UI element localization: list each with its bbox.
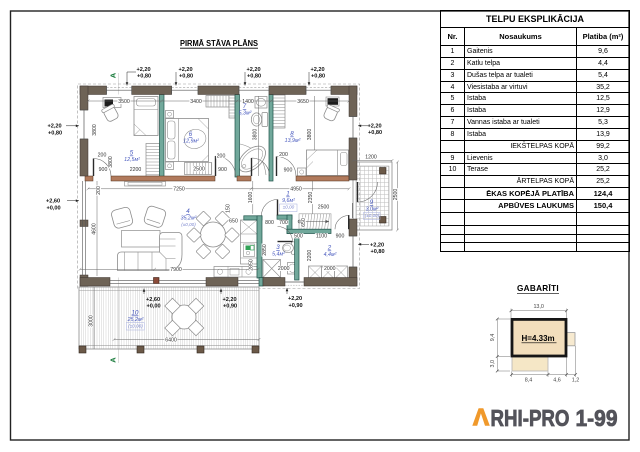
svg-text:1: 1 <box>286 191 289 198</box>
svg-text:4600: 4600 <box>92 223 98 235</box>
svg-text:7250: 7250 <box>173 187 185 193</box>
svg-text:2200: 2200 <box>130 167 142 173</box>
svg-text:2: 2 <box>327 245 332 252</box>
svg-text:RHI-PRO: RHI-PRO <box>491 405 570 431</box>
svg-text:+0,00: +0,00 <box>147 304 161 310</box>
svg-text:3500: 3500 <box>118 99 130 105</box>
svg-text:+0,80: +0,80 <box>371 249 385 255</box>
svg-text:2850: 2850 <box>248 259 254 271</box>
svg-text:1100: 1100 <box>316 233 327 239</box>
svg-text:+0,80: +0,80 <box>311 74 325 80</box>
svg-text:3800: 3800 <box>253 129 259 141</box>
svg-text:35,2м²: 35,2м² <box>181 216 197 222</box>
svg-text:+0,90: +0,90 <box>289 303 303 309</box>
svg-text:900: 900 <box>99 167 108 173</box>
svg-text:8: 8 <box>290 131 294 138</box>
svg-text:13,0: 13,0 <box>533 304 544 310</box>
svg-text:12,9м²: 12,9м² <box>183 139 199 145</box>
svg-text:+2,20: +2,20 <box>370 242 384 248</box>
svg-text:2500: 2500 <box>318 204 330 210</box>
svg-text:6: 6 <box>189 131 193 138</box>
svg-text:±0,00: ±0,00 <box>283 205 295 210</box>
svg-text:+0,80: +0,80 <box>368 130 382 136</box>
svg-text:3800: 3800 <box>108 156 114 168</box>
svg-text:4: 4 <box>186 208 190 215</box>
svg-text:1600: 1600 <box>248 192 254 204</box>
svg-text:(±0,00): (±0,00) <box>365 213 380 218</box>
svg-text:3,0м²: 3,0м² <box>366 207 379 213</box>
svg-text:700: 700 <box>279 220 288 226</box>
svg-text:1-99: 1-99 <box>576 405 618 431</box>
svg-text:2000: 2000 <box>278 266 290 272</box>
svg-text:+2,20: +2,20 <box>48 124 62 130</box>
svg-text:900: 900 <box>284 168 293 174</box>
svg-text:12,5м²: 12,5м² <box>124 157 140 163</box>
svg-text:+2,20: +2,20 <box>247 67 261 73</box>
svg-text:200: 200 <box>96 186 102 195</box>
svg-text:+2,20: +2,20 <box>288 296 302 302</box>
svg-text:1200: 1200 <box>365 154 377 160</box>
svg-text:+0,00: +0,00 <box>47 205 61 211</box>
svg-text:7: 7 <box>243 103 247 110</box>
svg-text:+0,80: +0,80 <box>179 74 193 80</box>
svg-text:650: 650 <box>301 218 307 227</box>
svg-text:7900: 7900 <box>170 267 182 273</box>
svg-text:+2,20: +2,20 <box>223 297 237 303</box>
svg-text:H=4.33m: H=4.33m <box>522 334 555 343</box>
svg-text:+2,20: +2,20 <box>311 67 325 73</box>
svg-text:9,6м²: 9,6м² <box>282 198 295 204</box>
svg-text:GABARĪTI: GABARĪTI <box>517 283 559 293</box>
svg-text:3400: 3400 <box>190 99 202 105</box>
svg-text:+2,20: +2,20 <box>179 67 193 73</box>
svg-text:3000: 3000 <box>89 315 95 327</box>
svg-text:+0,80: +0,80 <box>137 74 151 80</box>
svg-text:3: 3 <box>276 244 280 251</box>
svg-text:+0,80: +0,80 <box>48 130 62 136</box>
svg-text:(±0,00): (±0,00) <box>128 324 143 329</box>
svg-text:9,4: 9,4 <box>490 334 496 342</box>
svg-text:(±0,00): (±0,00) <box>181 222 196 227</box>
svg-text:+2,60: +2,60 <box>146 297 160 303</box>
svg-text:3,0: 3,0 <box>490 360 496 368</box>
svg-text:900: 900 <box>218 167 227 173</box>
svg-text:150: 150 <box>226 204 232 213</box>
svg-text:PIRMĀ STĀVA PLĀNS: PIRMĀ STĀVA PLĀNS <box>180 38 258 48</box>
svg-text:2200: 2200 <box>307 250 313 262</box>
svg-text:3800: 3800 <box>92 124 98 136</box>
svg-text:+0,80: +0,80 <box>247 74 261 80</box>
svg-text:25,2м²: 25,2м² <box>127 317 144 323</box>
svg-text:2850: 2850 <box>262 244 268 256</box>
svg-text:13,9м²: 13,9м² <box>285 138 301 144</box>
svg-text:3800: 3800 <box>307 129 313 141</box>
svg-text:800: 800 <box>265 220 274 226</box>
svg-text:8,4: 8,4 <box>525 378 533 384</box>
svg-text:5,4м²: 5,4м² <box>272 252 285 258</box>
svg-text:1,2: 1,2 <box>572 378 580 384</box>
svg-text:500: 500 <box>294 233 303 239</box>
svg-text:3650: 3650 <box>297 99 309 105</box>
svg-text:200: 200 <box>217 154 226 160</box>
svg-text:9: 9 <box>370 199 374 206</box>
svg-text:2500: 2500 <box>193 166 205 172</box>
svg-text:2000: 2000 <box>324 266 336 272</box>
svg-text:6400: 6400 <box>165 338 177 344</box>
svg-text:A: A <box>109 72 118 78</box>
svg-text:2350: 2350 <box>308 192 314 204</box>
svg-text:5: 5 <box>130 150 134 157</box>
svg-text:200: 200 <box>279 152 288 158</box>
svg-text:+2,60: +2,60 <box>46 199 60 205</box>
svg-text:200: 200 <box>98 153 107 159</box>
svg-text:900: 900 <box>336 233 345 239</box>
svg-text:5,3м²: 5,3м² <box>239 111 252 117</box>
svg-text:+0,90: +0,90 <box>223 304 237 310</box>
svg-text:4,4м²: 4,4м² <box>324 252 337 258</box>
svg-text:4,6: 4,6 <box>553 378 561 384</box>
svg-text:4950: 4950 <box>290 187 302 193</box>
svg-text:A: A <box>109 357 118 363</box>
svg-text:2500: 2500 <box>393 189 399 201</box>
svg-text:650: 650 <box>229 218 238 224</box>
svg-text:10: 10 <box>132 310 139 317</box>
svg-text:+2,20: +2,20 <box>137 67 151 73</box>
svg-text:+2,20: +2,20 <box>368 124 382 130</box>
